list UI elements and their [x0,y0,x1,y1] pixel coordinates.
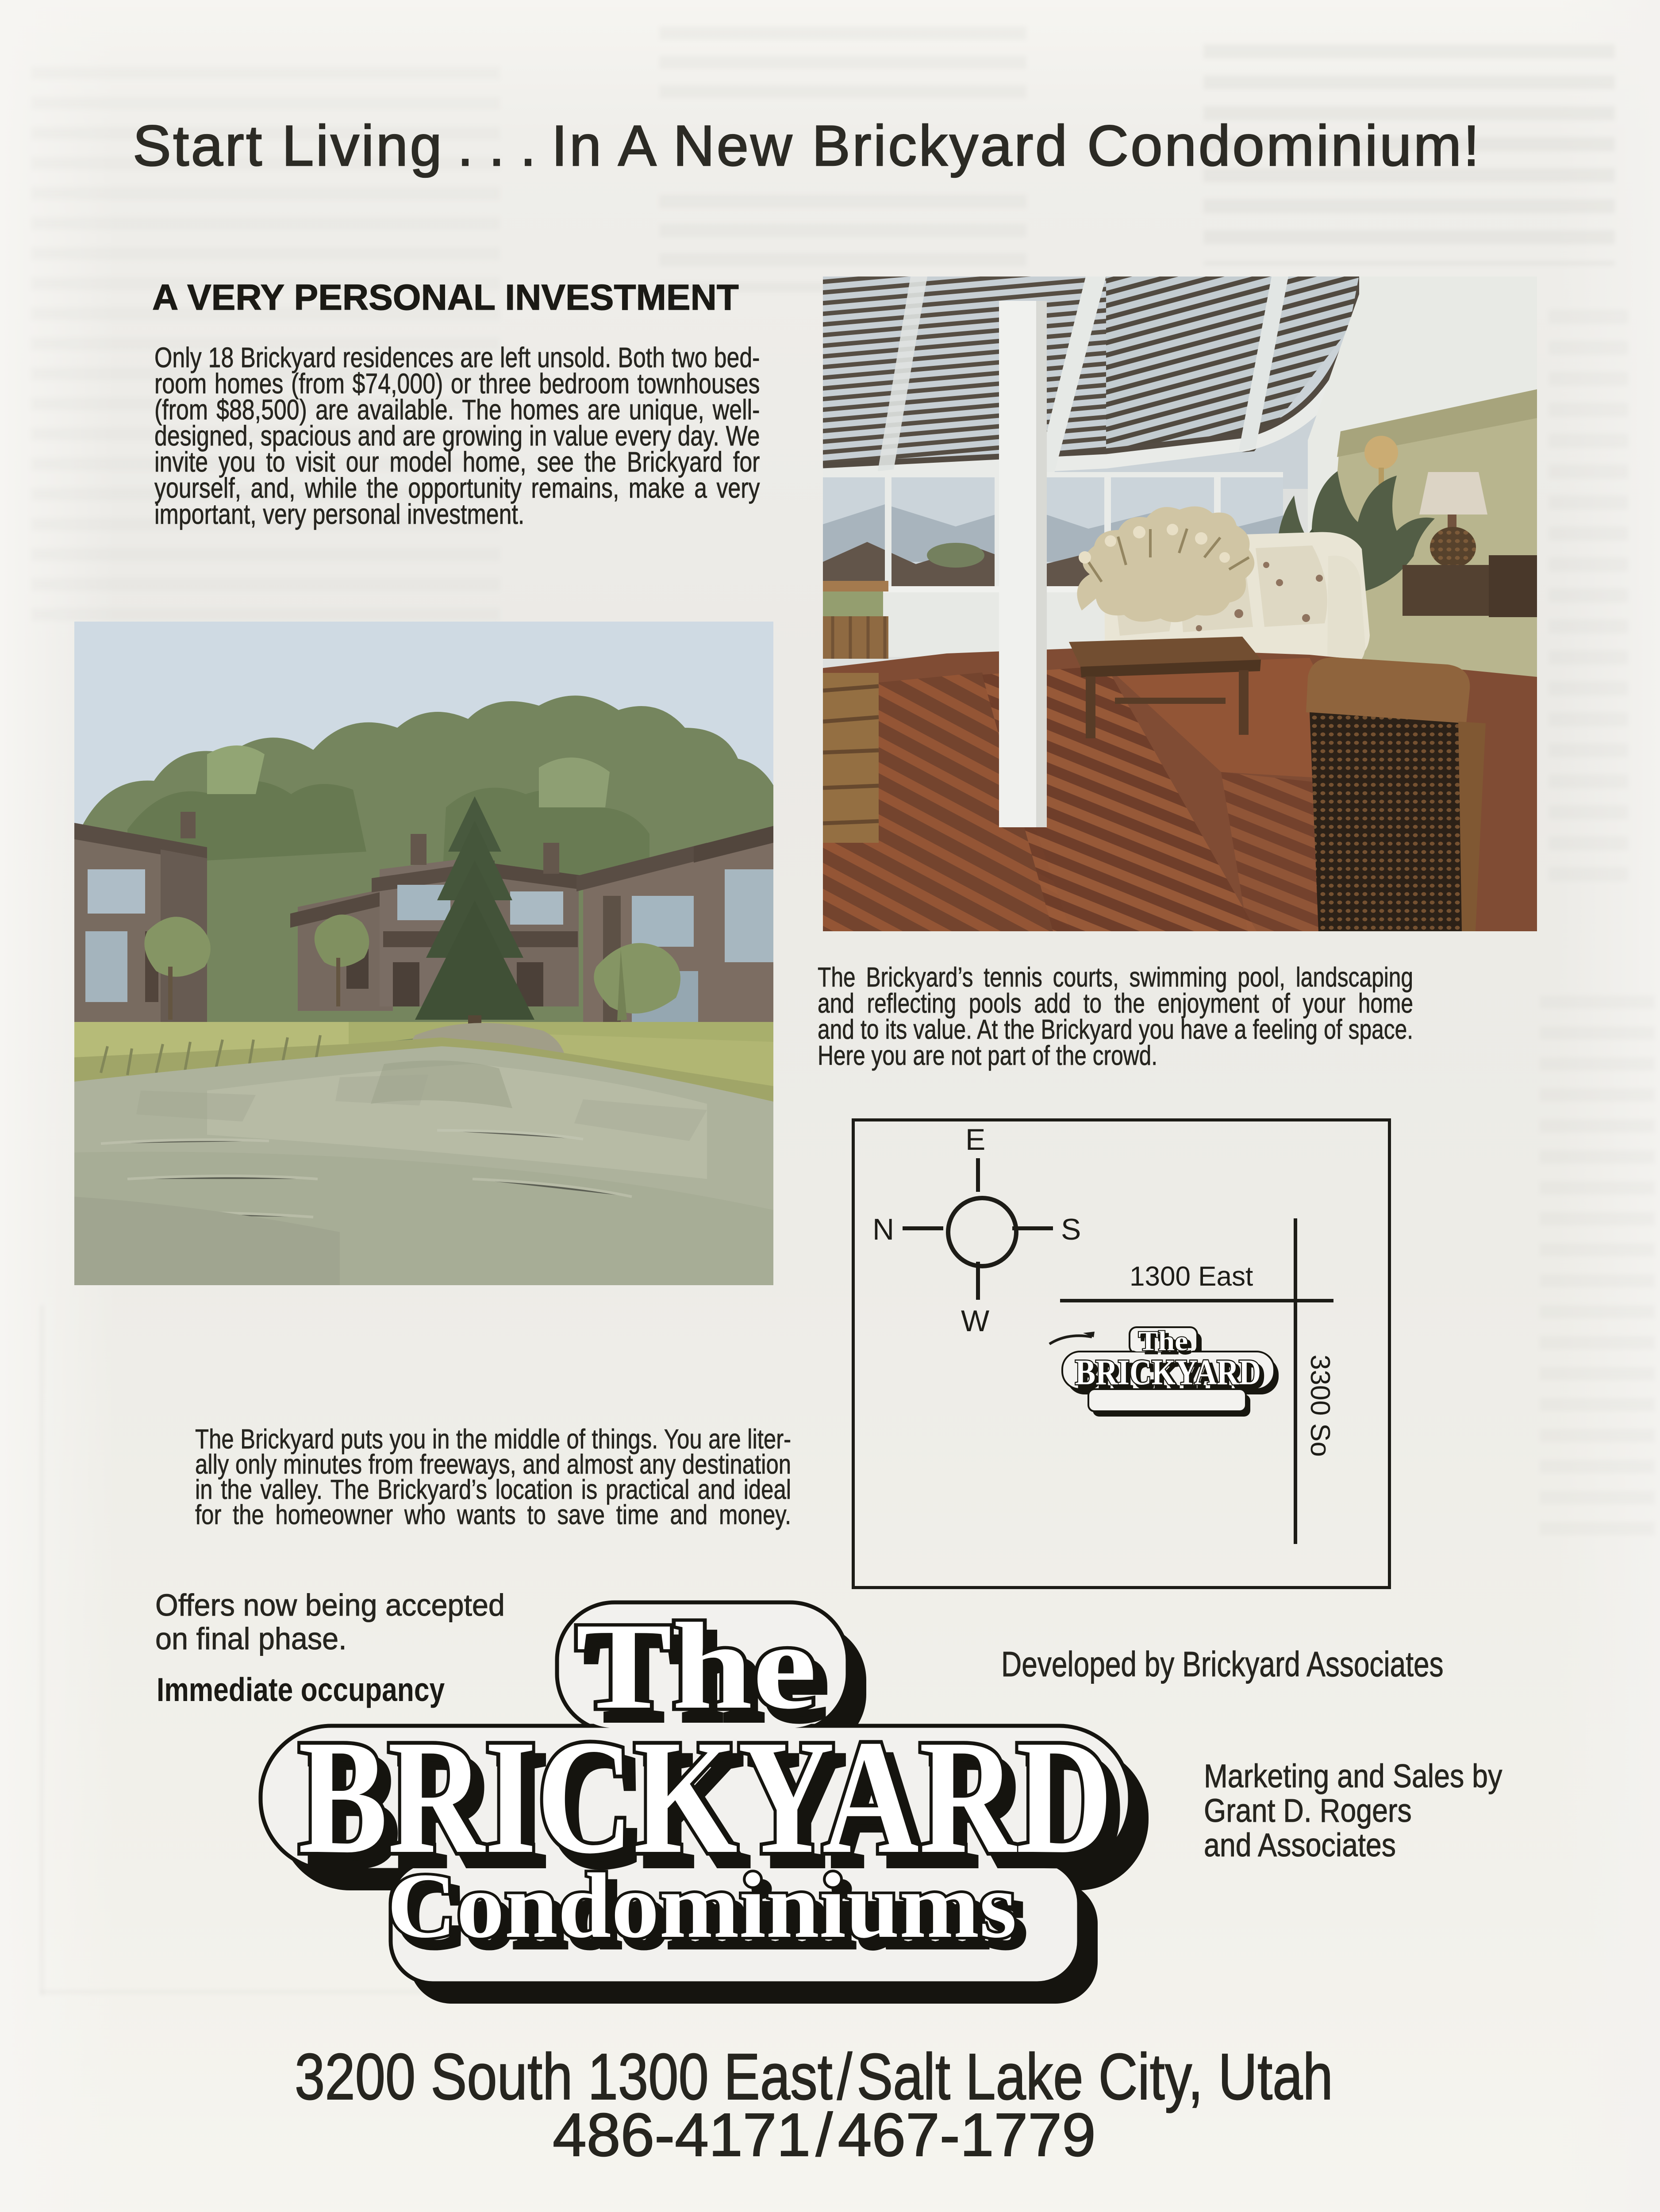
svg-text:BRICKYARD: BRICKYARD [1075,1352,1261,1392]
svg-text:Condominiums: Condominiums [387,1855,1017,1957]
